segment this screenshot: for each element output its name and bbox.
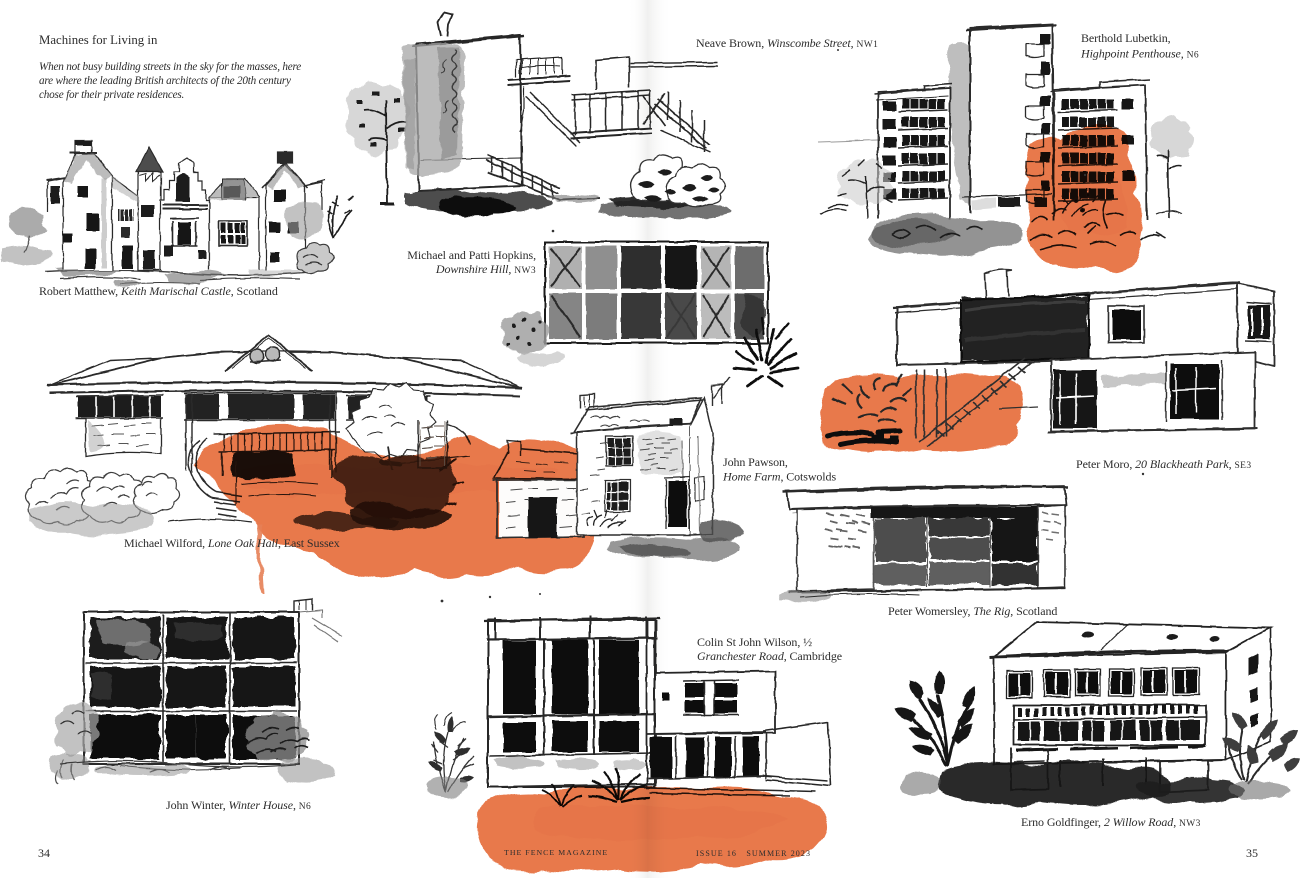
svg-text:Michael and Patti Hopkins,: Michael and Patti Hopkins,	[407, 248, 536, 262]
svg-text:Michael Wilford, Lone Oak Hall: Michael Wilford, Lone Oak Hall, East Sus…	[124, 536, 340, 550]
svg-text:Peter Moro, 20 Blackheath Park: Peter Moro, 20 Blackheath Park, SE3	[1076, 457, 1252, 471]
svg-text:Machines for Living in: Machines for Living in	[39, 33, 158, 47]
svg-text:Home Farm, Cotswolds: Home Farm, Cotswolds	[722, 470, 836, 484]
svg-text:34: 34	[38, 846, 50, 860]
svg-text:John Winter, Winter House, N6: John Winter, Winter House, N6	[166, 798, 311, 812]
svg-text:THE FENCE MAGAZINE: THE FENCE MAGAZINE	[504, 848, 608, 857]
svg-text:Berthold Lubetkin,: Berthold Lubetkin,	[1081, 31, 1171, 45]
svg-text:John Pawson,: John Pawson,	[723, 455, 788, 469]
svg-text:ISSUE 16 SUMMER 2023: ISSUE 16 SUMMER 2023	[696, 849, 811, 858]
svg-text:Peter Womersley, The Rig, Scot: Peter Womersley, The Rig, Scotland	[888, 604, 1057, 618]
svg-text:Neave Brown, Winscombe Street,: Neave Brown, Winscombe Street, NW1	[696, 36, 878, 50]
svg-text:are where the leading British: are where the leading British architects…	[39, 75, 291, 87]
svg-text:Granchester Road, Cambridge: Granchester Road, Cambridge	[697, 649, 842, 663]
svg-text:Robert Matthew, Keith Marischa: Robert Matthew, Keith Marischal Castle, …	[39, 284, 278, 298]
svg-text:Highpoint Penthouse, N6: Highpoint Penthouse, N6	[1080, 47, 1199, 61]
svg-text:When not busy building streets: When not busy building streets in the sk…	[39, 61, 301, 73]
svg-text:chose for their private reside: chose for their private residences.	[39, 89, 184, 101]
svg-text:Colin St John Wilson, ½: Colin St John Wilson, ½	[697, 635, 812, 649]
svg-text:Erno Goldfinger, 2 Willow Road: Erno Goldfinger, 2 Willow Road, NW3	[1021, 815, 1201, 829]
svg-text:35: 35	[1246, 846, 1258, 860]
